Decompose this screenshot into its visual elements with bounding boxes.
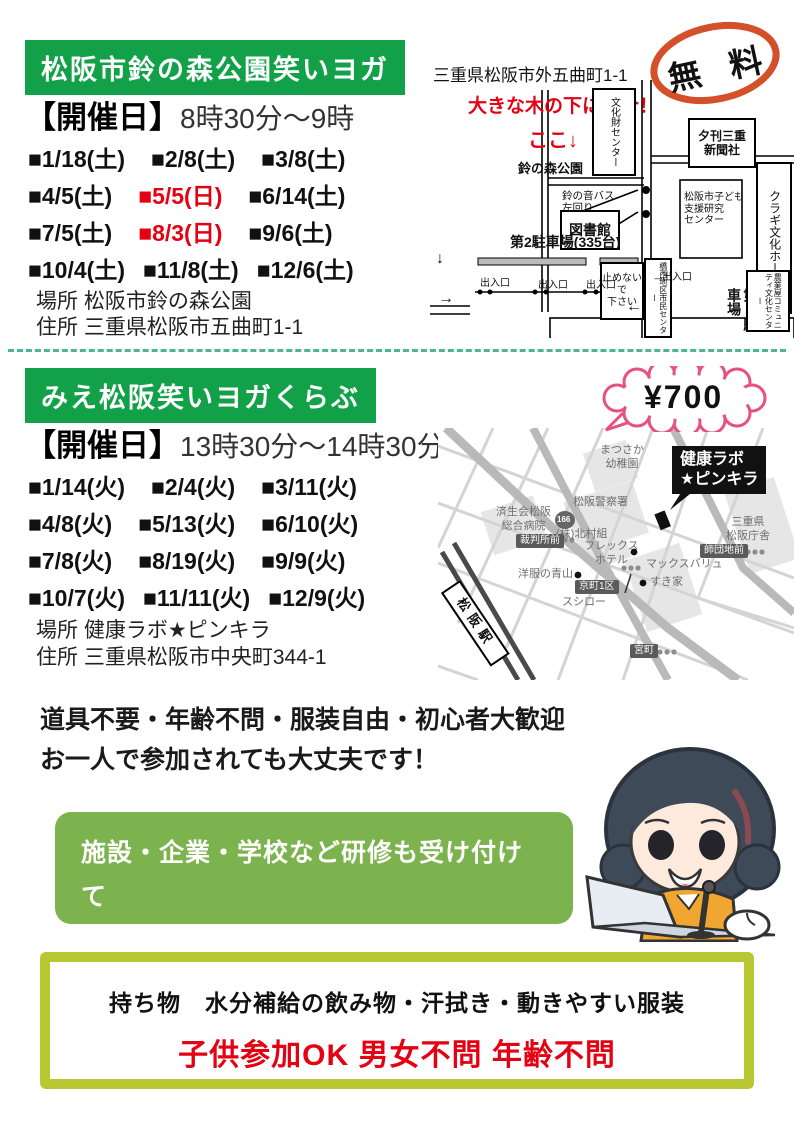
date-item-red: ■8/3(日) (138, 214, 222, 248)
map2-prefecture-office: 三重県 松阪庁舎 (726, 516, 770, 544)
date-item: ■2/4(火) (151, 468, 235, 502)
date-item: ■4/5(土) (28, 177, 112, 211)
section2-address: 住所 三重県松阪市中央町344-1 (36, 641, 327, 671)
map2-courthouse-stop: 裁判所前 (516, 534, 564, 548)
map1-arrow-right: → (438, 290, 454, 308)
section2-dates-row4: ■10/7(火) ■11/11(火) ■12/9(火) (28, 579, 365, 613)
map2-maxvalu: マックスバリュ (646, 558, 723, 572)
map2-police: 松阪警察署 (573, 496, 628, 510)
date-item: ■9/9(火) (261, 542, 345, 576)
bottom-info-box: 持ち物 水分補給の飲み物・汗拭き・動きやすい服装 子供参加OK 男女不問 年齢不… (40, 952, 754, 1089)
map2-flex-hotel: フレックス ホテル (584, 540, 639, 568)
date-item: ■2/8(土) (151, 140, 235, 174)
section2-dates-row2: ■4/8(火) ■5/13(火) ■6/10(火) (28, 505, 358, 539)
section2-title-banner: みえ松阪笑いヨガくらぶ (25, 368, 376, 423)
date-item: ■7/5(土) (28, 214, 112, 248)
map2-sushiro: スシロー (562, 596, 606, 610)
date-item: ■12/6(土) (257, 251, 354, 285)
section2-schedule-label: 【開催日】 (25, 428, 180, 463)
bottom-note-line: 子供参加OK 男女不問 年齢不問 (50, 1030, 744, 1074)
section1-schedule-label: 【開催日】 (25, 100, 180, 135)
map1-here-label: ここ↓ (528, 130, 578, 153)
date-item-red: ■5/5(日) (138, 177, 222, 211)
fee-badge: ¥700 (592, 366, 768, 432)
map1-exit: 出入口 (480, 278, 510, 290)
map2-miyamachi-stop: 宮町 (630, 644, 658, 658)
date-item: ■10/4(土) (28, 251, 125, 285)
map1-parking2: 第2駐車場(335台) (510, 234, 620, 250)
section1-address: 住所 三重県松阪市五曲町1-1 (36, 311, 303, 341)
section2-schedule: 【開催日】13時30分～14時30分 (25, 420, 445, 465)
map2-route-166-badge: 166 (557, 515, 570, 524)
section2-place: 場所 健康ラボ★ピンキラ (36, 614, 271, 644)
map2-kyomachi-stop: 京町1区 (575, 580, 619, 594)
notes-line1: 道具不要・年齢不問・服装自由・初心者大歓迎 (40, 700, 565, 736)
free-badge: 無 料 (645, 18, 785, 108)
date-item: ■11/11(火) (143, 579, 250, 613)
date-item: ■6/10(火) (261, 505, 358, 539)
map1-nogyo-center: 農業屋コミュニティ文化センター (746, 270, 790, 332)
map1-arrow-down: ↓ (436, 250, 444, 268)
date-item: ■11/8(土) (143, 251, 239, 285)
woman-at-laptop-illustration (585, 737, 794, 942)
map1-exit: 出入口 (662, 272, 692, 284)
bottom-items-line: 持ち物 水分補給の飲み物・汗拭き・動きやすい服装 (50, 984, 744, 1018)
date-item: ■3/8(土) (261, 140, 345, 174)
map1-address-label: 三重県松阪市外五曲町1-1 (433, 66, 628, 86)
map1-exit: 出入口 (586, 280, 616, 292)
flyer-page: 松阪市鈴の森公園笑いヨガ 【開催日】8時30分～9時 ■1/18(土) ■2/8… (0, 0, 794, 1123)
map1-newspaper: 夕刊三重 新聞社 (688, 118, 756, 168)
section1-schedule-time: 8時30分～9時 (180, 103, 354, 134)
fee-badge-text: ¥700 (644, 379, 723, 416)
date-item: ■5/13(火) (138, 505, 235, 539)
date-item: ■8/19(火) (138, 542, 235, 576)
section2-dates-row1: ■1/14(火) ■2/4(火) ■3/11(火) (28, 468, 357, 502)
map2-aoyama: 洋服の青山 (518, 568, 573, 582)
section1-dates-row2: ■4/5(土) ■5/5(日) ■6/14(土) (28, 177, 345, 211)
date-item: ■1/18(土) (28, 140, 125, 174)
section1-schedule: 【開催日】8時30分～9時 (25, 92, 354, 137)
map1-exit: 出入口 (538, 280, 568, 292)
lab-access-map: まつさか 幼稚園 健康ラボ ★ピンキラ 松阪警察署 (株)北村組 三重県 松阪庁… (438, 428, 794, 680)
date-item: ■3/11(火) (261, 468, 357, 502)
section1-dates-row1: ■1/18(土) ■2/8(土) ■3/8(土) (28, 140, 345, 174)
map2-sukiya: すき家 (650, 576, 683, 590)
map1-kodomo-center: 松阪市子ども 支援研究 センター (684, 192, 744, 227)
map1-bunkazai-center: 文化財センター (592, 88, 636, 176)
map1-park-label: 鈴の森公園 (518, 162, 583, 177)
map2-hospital: 済生会松阪 総合病院 (496, 506, 551, 534)
date-item: ■7/8(火) (28, 542, 112, 576)
date-item: ■4/8(火) (28, 505, 112, 539)
contact-box: 施設・企業・学校など研修も受け付けて います・気軽にお問い合わせ下さい (55, 812, 573, 924)
date-item: ■9/6(土) (248, 214, 332, 248)
map1-arrow-left: ← (626, 298, 642, 316)
map2-kenko-lab: 健康ラボ ★ピンキラ (672, 446, 766, 494)
map2-danchi-stop: 師団地前 (700, 544, 748, 558)
section2-schedule-time: 13時30分～14時30分 (180, 431, 445, 462)
date-item: ■6/14(土) (248, 177, 345, 211)
date-item: ■12/9(火) (268, 579, 365, 613)
section1-dates-row3: ■7/5(土) ■8/3(日) ■9/6(土) (28, 214, 333, 248)
contact-box-line1: 施設・企業・学校など研修も受け付けて (81, 832, 547, 920)
section2-dates-row3: ■7/8(火) ■8/19(火) ■9/9(火) (28, 542, 345, 576)
map1-arrow-right: → (652, 270, 665, 285)
notes-line2: お一人で参加されても大丈夫です！ (40, 740, 438, 776)
section1-dates-row4: ■10/4(土) ■11/8(土) ■12/6(土) (28, 251, 354, 285)
section1-title-banner: 松阪市鈴の森公園笑いヨガ (25, 40, 405, 95)
map2-kindergarten: まつさか 幼稚園 (600, 444, 644, 472)
section-divider (8, 349, 786, 352)
date-item: ■10/7(火) (28, 579, 125, 613)
date-item: ■1/14(火) (28, 468, 125, 502)
